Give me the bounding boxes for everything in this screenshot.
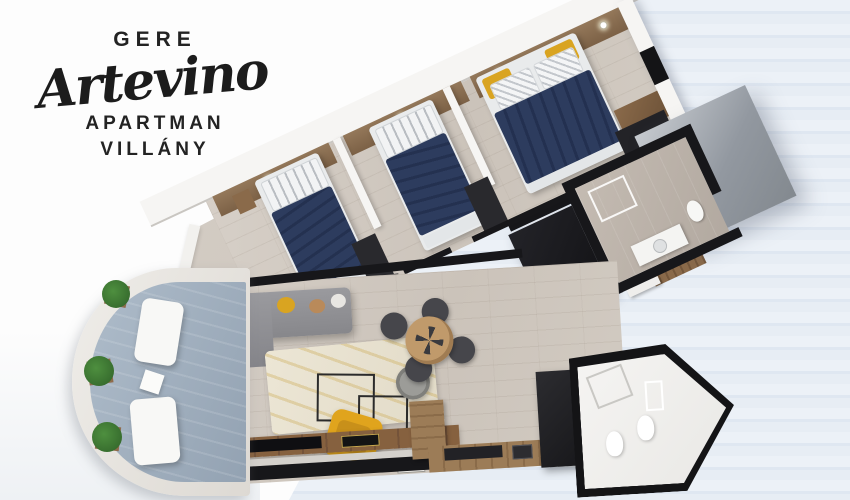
brand-logo: GERE Artevino APARTMAN VILLÁNY [40,28,270,161]
balcony-terrace [72,268,250,496]
decor-tray [341,434,380,448]
brand-name-bottom: VILLÁNY [40,139,270,161]
kitchen-sink-icon [512,444,533,459]
plant-icon [102,280,130,308]
brand-name-script: Artevino [32,44,272,119]
plant-icon [92,422,122,452]
plant-icon [84,356,114,386]
table-legs-cross [415,326,445,356]
bath2-towel-rail [644,380,664,411]
lounger [129,396,181,466]
living-wing [172,258,745,500]
floorplan-scene: GERE Artevino APARTMAN VILLÁNY [0,0,850,500]
